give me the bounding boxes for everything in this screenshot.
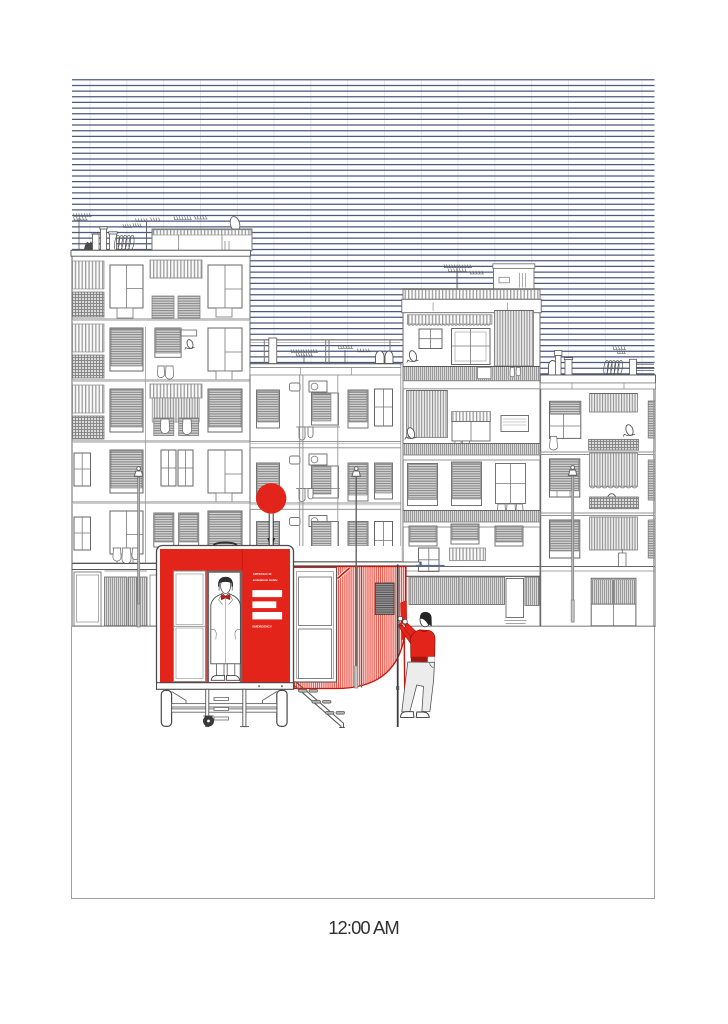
svg-text:12:00 AM: 12:00 AM — [328, 917, 399, 938]
svg-text:EMERGENCY: EMERGENCY — [252, 625, 272, 629]
svg-text:ARTICOLO 10: ARTICOLO 10 — [253, 572, 272, 576]
svg-text:ambulatorio mobile: ambulatorio mobile — [253, 578, 278, 582]
